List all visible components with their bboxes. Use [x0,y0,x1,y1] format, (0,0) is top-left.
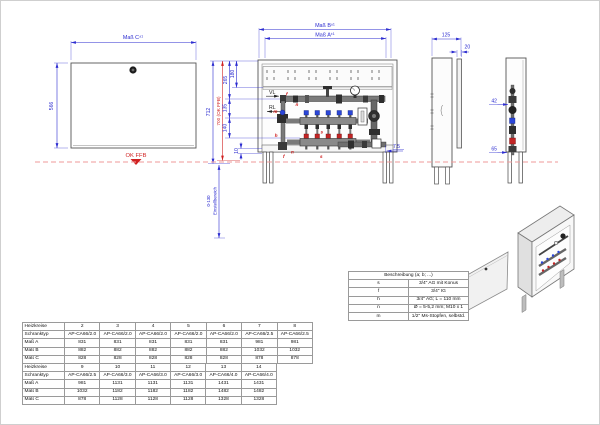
table-cell: h [349,296,409,304]
dim-10: 10 [234,148,240,154]
dim-135: 135 [223,104,229,113]
dim-712: 712 [206,108,212,117]
dim-700-okffb: 700 (OK FFB) [216,96,221,126]
letter-f-2: f [283,154,285,159]
table-cell: 2 [65,323,100,331]
table-cell: Maß A [23,380,65,388]
table-cell: 831 [206,339,241,347]
table-cell: 10 [100,364,135,372]
table-cell: 1182 [135,388,170,396]
dim-180: 180 [230,70,236,79]
dim-20: 20 [465,45,471,51]
table-row: Maß A98111311131113114311431 [23,380,277,388]
table-cell: 3 [100,323,135,331]
table-cell: 831 [65,339,100,347]
dim-42: 42 [491,99,497,105]
table-cell: Heizkreise [23,323,65,331]
door-panel-side [457,59,462,148]
table-cell: 9 [65,364,100,372]
table-cell: AP-CA66/2.5 [242,331,277,339]
table-cell: m [349,313,409,321]
table-cell: 1128 [170,396,205,404]
table-cell: Ø = 5-5,2 mm; M10 x 1 [409,304,469,312]
table-cell: AP-CA66/3.0 [135,372,170,380]
table-cell: AP-CA66/4.0 [206,372,241,380]
table-cell: 1032 [277,347,312,355]
door-lock-icon [129,66,136,73]
dim-mass-b: Maß B±1 [315,22,335,29]
adjust-range-value: 0-130 [206,195,211,207]
adjust-range-label: Einstellbereich [213,186,218,215]
table-cell: 7 [242,323,277,331]
size-table-1: Heizkreise2345678SchranktypAP-CA66/2.0AP… [22,322,313,364]
table-cell: 1482 [206,388,241,396]
table-cell: Schranktyp [23,331,65,339]
table-cell: 1131 [100,380,135,388]
table-cell: 1431 [241,380,276,388]
table-row: Heizkreise91011121314 [23,364,277,372]
manifold-view: Maß B±1 Maß A±1 712 700 (O [206,22,404,238]
letter-s-2: s [320,154,323,159]
table-cell: 5 [171,323,206,331]
iso-cabinet [518,206,574,313]
table-cell: Maß C [23,396,65,404]
table-cell: 882 [171,347,206,355]
table-row: SchranktypAP-CA66/2.5AP-CA66/3.0AP-CA66/… [23,372,277,380]
table-cell: 882 [65,347,100,355]
table-cell: 831 [171,339,206,347]
table-row: Heizkreise2345678 [23,323,313,331]
table-row: h3/4" AG; L = 110 mm [349,296,469,304]
table-cell: 831 [100,339,135,347]
ok-ffb-label: OK FFB [126,153,147,159]
dim-mass-c: Maß C±1 [123,34,143,41]
table-row: Maß B88288288288288210321032 [23,347,313,355]
table-cell: 1128 [135,396,170,404]
size-table-2: Heizkreise91011121314SchranktypAP-CA66/2… [22,363,277,405]
letter-m: m [273,109,277,114]
letter-n: n [296,102,299,107]
table-cell: 14 [241,364,276,372]
legend-title: Beschreibung (a; b; ...) [349,272,469,280]
table-row: m1/2" Ms-Stopfen, selbstd. [349,313,469,321]
letter-h: h [275,133,278,138]
side-view-open: 42 65 [489,58,526,183]
table-cell: 1482 [241,388,276,396]
table-cell: 1131 [170,380,205,388]
letter-n-2: n [291,150,294,155]
dim-125: 125 [442,33,451,39]
dim-566: 566 [49,102,55,111]
table-cell: 882 [135,347,170,355]
table-cell: 3/4" AG; L = 110 mm [409,296,469,304]
table-row: nØ = 5-5,2 mm; M10 x 1 [349,304,469,312]
table-cell: 1328 [206,396,241,404]
table-cell: 878 [277,355,312,363]
table-cell: AP-CA66/2.0 [100,331,135,339]
table-cell: 4 [135,323,170,331]
side-view-closed: 125 20 [431,33,471,185]
table-row: SchranktypAP-CA66/2.0AP-CA66/2.0AP-CA66/… [23,331,313,339]
table-cell: AP-CA66/2.0 [206,331,241,339]
table-cell: Schranktyp [23,372,65,380]
table-cell: 6 [206,323,241,331]
technical-drawing-sheet: Maß C±1 566 OK FFB Maß B±1 Maß A±1 [0,0,600,425]
table-cell: Maß B [23,388,65,396]
table-cell: 1032 [242,347,277,355]
table-cell: 1182 [100,388,135,396]
table-cell: 1431 [206,380,241,388]
table-row: Maß C87811281128112813281328 [23,396,277,404]
table-cell: 878 [65,396,100,404]
table-cell: 981 [277,339,312,347]
table-cell: AP-CA66/3.0 [100,372,135,380]
table-cell: s [349,280,409,288]
table-cell: 1328 [241,396,276,404]
table-cell: 831 [135,339,170,347]
table-cell: 882 [206,347,241,355]
table-cell: n [349,304,409,312]
table-cell: 981 [65,380,100,388]
dim-265: 265 [223,76,229,85]
dim-65: 65 [491,147,497,153]
table-cell: 3/4" IG [409,288,469,296]
iso-door-lock-icon [485,268,488,271]
table-cell: AP-CA66/4.0 [241,372,276,380]
table-cell: 11 [135,364,170,372]
table-cell: 1032 [65,388,100,396]
table-cell: AP-CA66/2.0 [135,331,170,339]
table-cell: AP-CA66/2.0 [65,331,100,339]
front-view: Maß C±1 566 OK FFB [49,34,196,165]
table-cell: AP-CA66/2.5 [65,372,100,380]
table-cell: 981 [242,339,277,347]
table-cell: Heizkreise [23,364,65,372]
table-cell: 13 [206,364,241,372]
table-cell: AP-CA66/2.5 [277,331,312,339]
table-cell: AP-CA66/2.0 [171,331,206,339]
table-cell: 882 [100,347,135,355]
dim-140: 140 [223,124,229,133]
table-row: s3/4" AG mit Konus [349,280,469,288]
table-cell: Maß B [23,347,65,355]
table-row: f3/4" IG [349,288,469,296]
dim-75: 7.5 [393,144,400,150]
table-row: Maß A831831831831831981981 [23,339,313,347]
letter-s: s [321,130,324,135]
table-cell: AP-CA66/3.0 [170,372,205,380]
table-row: Maß B103211821182118214821482 [23,388,277,396]
table-cell: Maß A [23,339,65,347]
legend-table: Beschreibung (a; b; ...) s3/4" AG mit Ko… [348,271,469,321]
table-cell: 3/4" AG mit Konus [409,280,469,288]
dim-mass-a: Maß A±1 [315,32,335,39]
table-cell: f [349,288,409,296]
table-cell: 8 [277,323,312,331]
table-cell: 12 [170,364,205,372]
table-cell: 1128 [100,396,135,404]
table-cell: 1182 [170,388,205,396]
vl-label: VL [269,90,275,96]
table-cell: 1/2" Ms-Stopfen, selbstd. [409,313,469,321]
legend-header-row: Beschreibung (a; b; ...) [349,272,469,280]
table-cell: 1131 [135,380,170,388]
